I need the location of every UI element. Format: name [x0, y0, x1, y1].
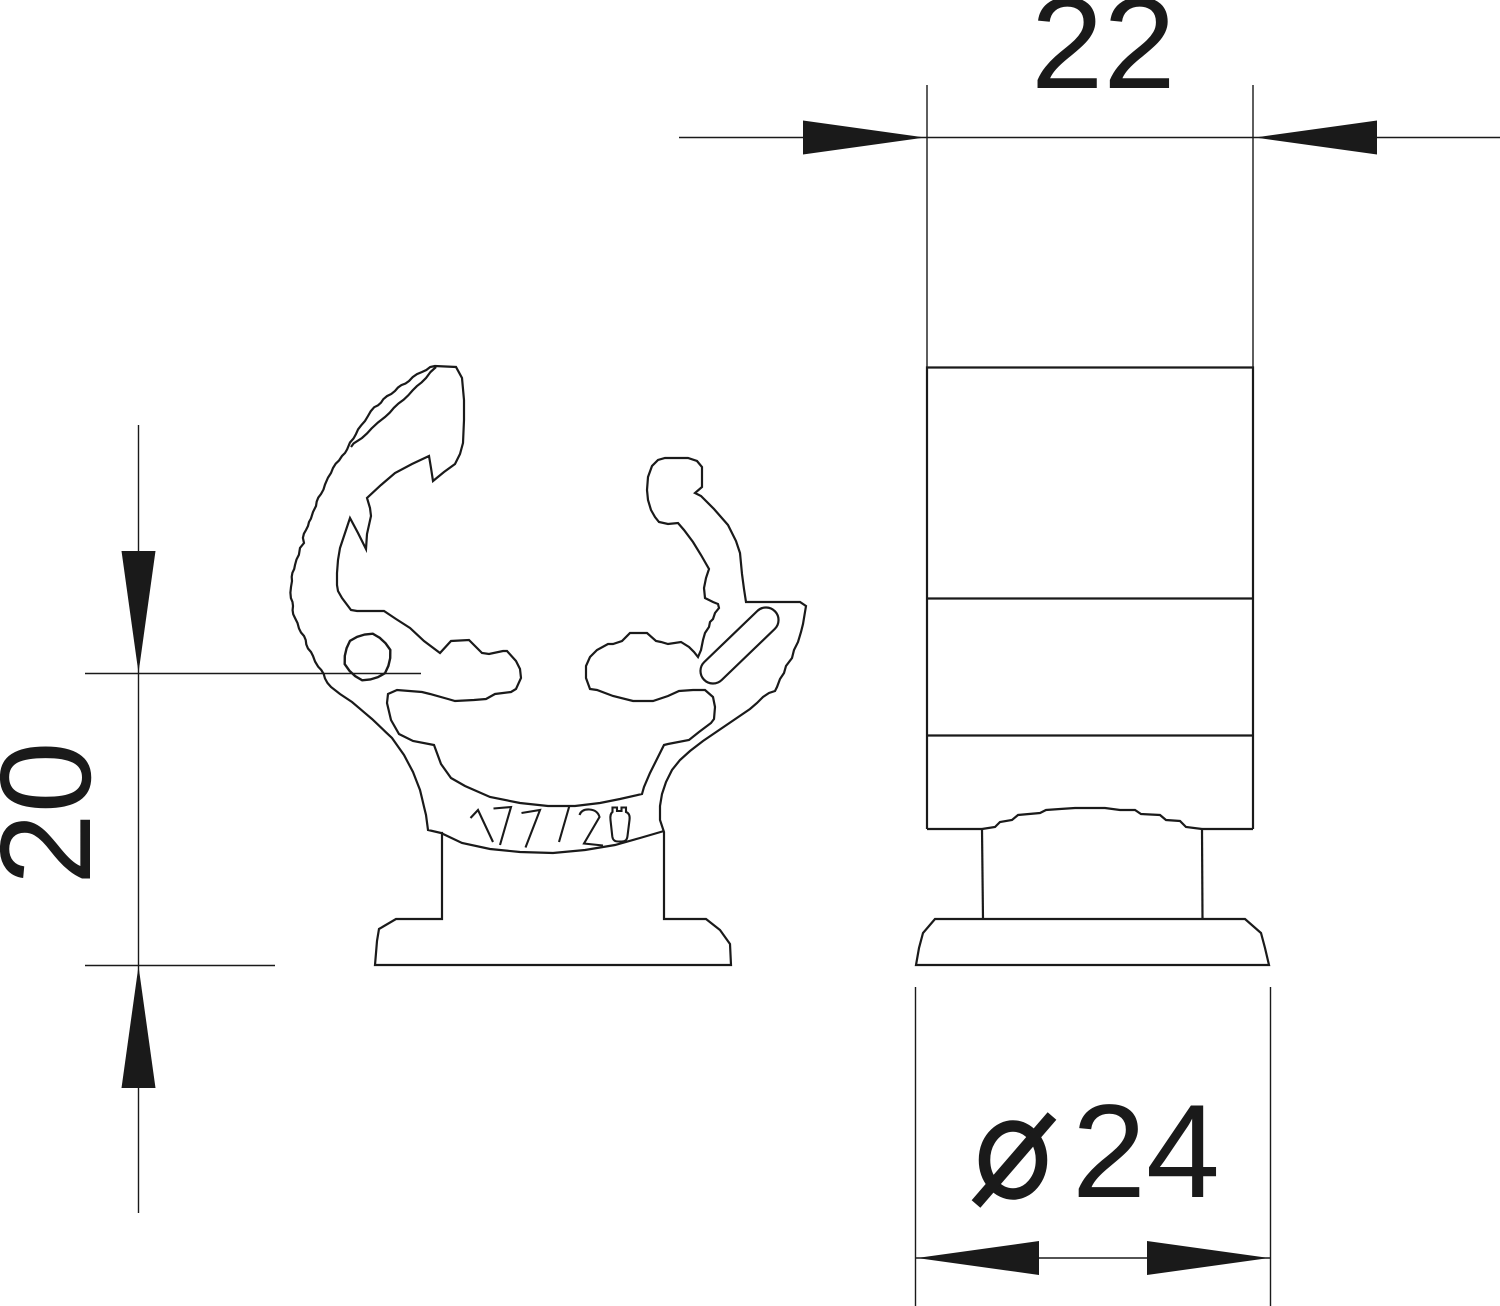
svg-text:20: 20 [0, 742, 118, 886]
svg-text:24: 24 [1072, 1078, 1220, 1226]
svg-text:22: 22 [1031, 0, 1176, 116]
